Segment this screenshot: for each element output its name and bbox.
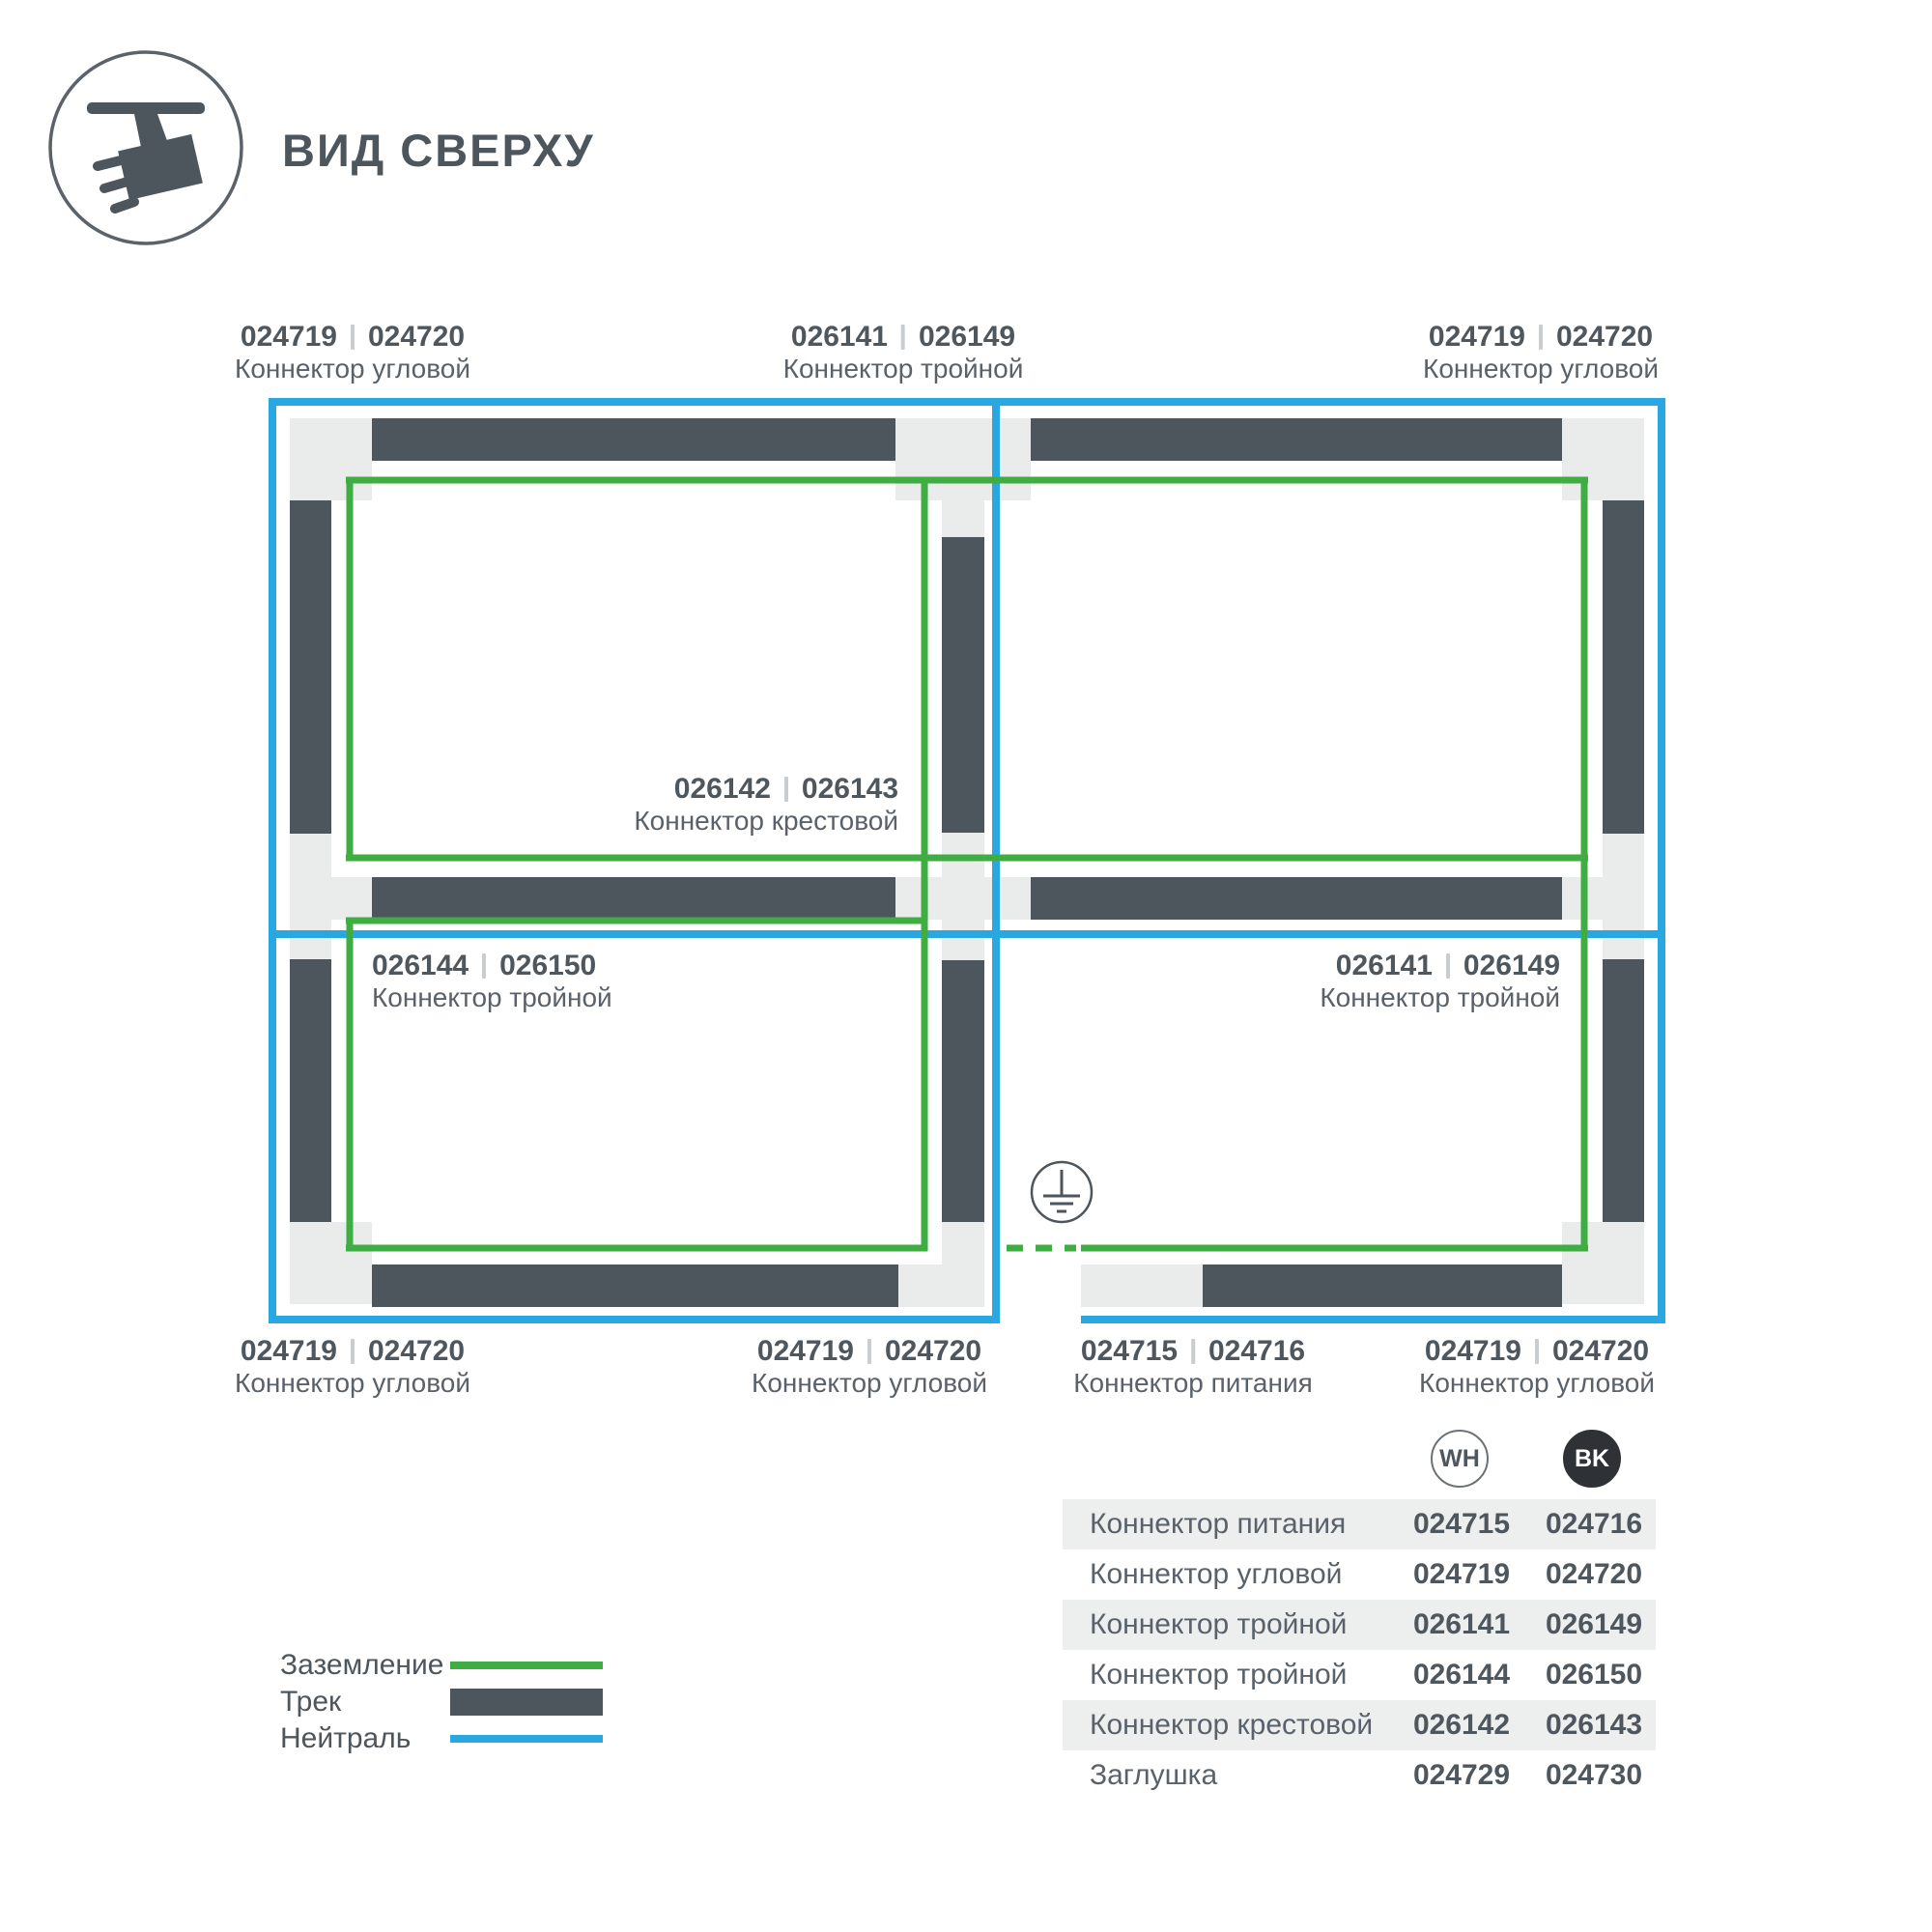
table-row: Коннектор крестовой026142026143	[1063, 1700, 1656, 1750]
part-codes: 024719024720	[235, 1335, 470, 1368]
code-divider	[351, 1339, 355, 1364]
part-codes: 026144026150	[372, 950, 612, 982]
table-row: Коннектор питания024715024716	[1063, 1499, 1656, 1549]
part-codes: 024719024720	[752, 1335, 987, 1368]
parts-table: WH BK Коннектор питания024715024716 Конн…	[1063, 1430, 1656, 1801]
label-triple-connector-left: 026144026150 Коннектор тройной	[372, 950, 612, 1012]
label-corner-connector-top-left: 024719024720 Коннектор угловой	[235, 321, 470, 384]
label-corner-connector-top-right: 024719024720 Коннектор угловой	[1423, 321, 1659, 384]
part-codes: 026141026149	[783, 321, 1024, 354]
earth-symbol	[1032, 1162, 1092, 1222]
code-divider	[784, 777, 788, 802]
code-divider	[351, 325, 355, 350]
parts-table-header: WH BK	[1063, 1430, 1656, 1499]
part-codes: 026142026143	[634, 773, 898, 806]
table-row: Коннектор тройной026144026150	[1063, 1650, 1656, 1700]
label-corner-connector-bottom-left: 024719024720 Коннектор угловой	[235, 1335, 470, 1398]
label-triple-connector-right: 026141026149 Коннектор тройной	[1320, 950, 1560, 1012]
label-triple-connector-top: 026141026149 Коннектор тройной	[783, 321, 1024, 384]
track-bar-swatch	[450, 1689, 603, 1716]
label-corner-connector-bottom-right: 024719024720 Коннектор угловой	[1419, 1335, 1655, 1398]
label-power-connector: 024715024716 Коннектор питания	[1073, 1335, 1313, 1398]
label-cross-connector-center: 026142026143 Коннектор крестовой	[634, 773, 898, 836]
part-codes: 024719024720	[235, 321, 470, 354]
code-divider	[1535, 1339, 1539, 1364]
part-codes: 026141026149	[1320, 950, 1560, 982]
legend-item-neutral: Нейтраль	[280, 1720, 603, 1757]
code-divider	[1191, 1339, 1195, 1364]
legend-item-track: Трек	[280, 1684, 603, 1720]
code-divider	[1539, 325, 1543, 350]
code-divider	[867, 1339, 871, 1364]
label-corner-connector-bottom-middle: 024719024720 Коннектор угловой	[752, 1335, 987, 1398]
color-badge-black: BK	[1563, 1430, 1621, 1488]
part-codes: 024719024720	[1419, 1335, 1655, 1368]
code-divider	[1446, 953, 1450, 979]
page: { "header": { "title": "ВИД СВЕРХУ" }, "…	[0, 0, 1932, 1932]
part-codes: 024715024716	[1073, 1335, 1313, 1368]
neutral-line-swatch	[450, 1735, 603, 1743]
legend: Заземление Трек Нейтраль	[280, 1647, 603, 1757]
code-divider	[482, 953, 486, 979]
table-row: Коннектор угловой024719024720	[1063, 1549, 1656, 1600]
code-divider	[901, 325, 905, 350]
legend-item-ground: Заземление	[280, 1647, 603, 1684]
table-row: Заглушка024729024730	[1063, 1750, 1656, 1801]
part-codes: 024719024720	[1423, 321, 1659, 354]
color-badge-white: WH	[1431, 1430, 1489, 1488]
table-row: Коннектор тройной026141026149	[1063, 1600, 1656, 1650]
ground-line-swatch	[450, 1662, 603, 1669]
